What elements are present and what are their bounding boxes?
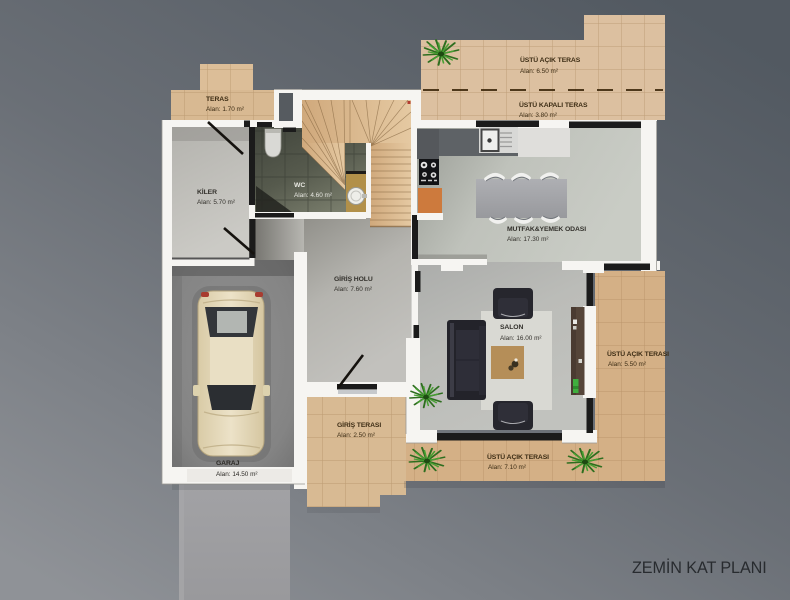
svg-text:Alan: 16.00 m²: Alan: 16.00 m² bbox=[500, 335, 542, 342]
svg-text:ZEMİN KAT PLANI: ZEMİN KAT PLANI bbox=[632, 558, 767, 577]
svg-text:Alan: 14.50 m²: Alan: 14.50 m² bbox=[216, 471, 258, 478]
svg-text:Alan: 4.60 m²: Alan: 4.60 m² bbox=[294, 192, 332, 199]
svg-text:Alan: 5.50 m²: Alan: 5.50 m² bbox=[608, 361, 646, 368]
svg-text:ÜSTÜ KAPALI TERAS: ÜSTÜ KAPALI TERAS bbox=[519, 100, 588, 109]
svg-text:GİRİŞ TERASI: GİRİŞ TERASI bbox=[337, 421, 381, 429]
svg-text:MUTFAK&YEMEK ODASI: MUTFAK&YEMEK ODASI bbox=[507, 226, 586, 233]
svg-text:KİLER: KİLER bbox=[197, 188, 217, 196]
svg-text:Alan: 17.30 m²: Alan: 17.30 m² bbox=[507, 236, 549, 243]
svg-text:Alan: 7.60 m²: Alan: 7.60 m² bbox=[334, 286, 372, 293]
svg-text:Alan: 6.50 m²: Alan: 6.50 m² bbox=[520, 68, 558, 75]
svg-text:TERAS: TERAS bbox=[206, 96, 229, 103]
svg-text:Alan: 7.10 m²: Alan: 7.10 m² bbox=[488, 464, 526, 471]
svg-text:Alan: 5.70 m²: Alan: 5.70 m² bbox=[197, 199, 235, 206]
svg-text:ÜSTÜ AÇIK TERASI: ÜSTÜ AÇIK TERASI bbox=[607, 349, 669, 358]
svg-text:GARAJ: GARAJ bbox=[216, 460, 240, 467]
svg-text:SALON: SALON bbox=[500, 324, 523, 331]
svg-text:Alan: 2.50 m²: Alan: 2.50 m² bbox=[337, 432, 375, 439]
svg-text:WC: WC bbox=[294, 182, 305, 189]
svg-text:ÜSTÜ AÇIK TERASI: ÜSTÜ AÇIK TERASI bbox=[487, 452, 549, 461]
svg-text:ÜSTÜ AÇIK TERAS: ÜSTÜ AÇIK TERAS bbox=[520, 55, 581, 64]
svg-text:Alan: 1.70 m²: Alan: 1.70 m² bbox=[206, 106, 244, 113]
svg-text:Alan: 3.80 m²: Alan: 3.80 m² bbox=[519, 112, 557, 119]
svg-text:GİRİŞ HOLU: GİRİŞ HOLU bbox=[334, 275, 373, 283]
